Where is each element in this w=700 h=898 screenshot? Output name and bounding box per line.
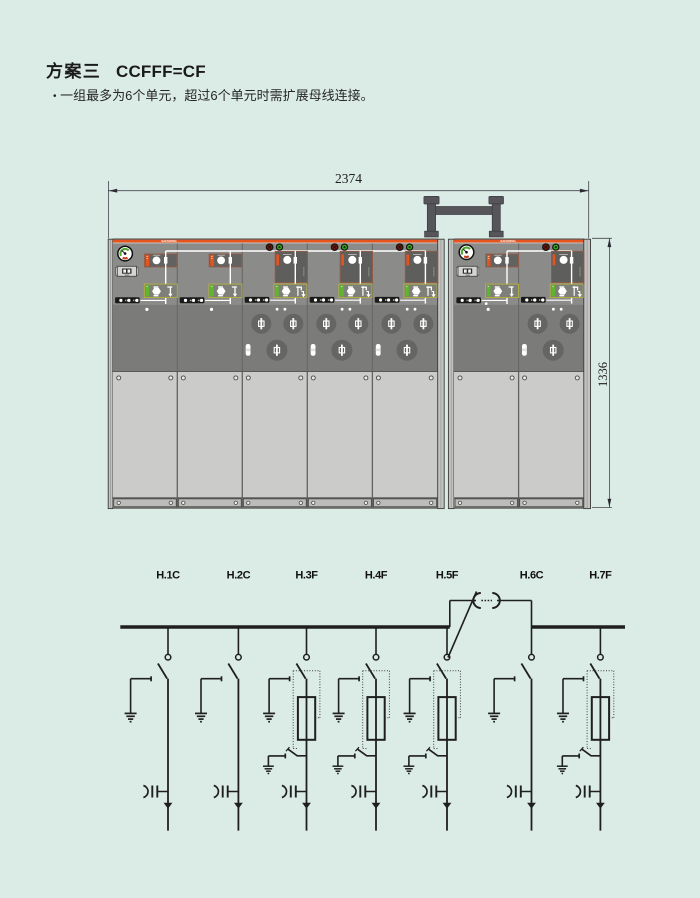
svg-text:H.4F: H.4F <box>365 570 388 582</box>
svg-text:SAFERING: SAFERING <box>500 239 516 243</box>
svg-text:H.1C: H.1C <box>156 570 180 582</box>
svg-text:1336: 1336 <box>596 362 610 387</box>
svg-text:H.5F: H.5F <box>436 570 459 582</box>
svg-text:2374: 2374 <box>335 171 362 186</box>
svg-text:SAFERING: SAFERING <box>161 239 177 243</box>
svg-text:H.3F: H.3F <box>295 570 318 582</box>
svg-text:H.6C: H.6C <box>520 570 544 582</box>
svg-text:H.7F: H.7F <box>589 570 612 582</box>
svg-text:H.2C: H.2C <box>227 570 251 582</box>
